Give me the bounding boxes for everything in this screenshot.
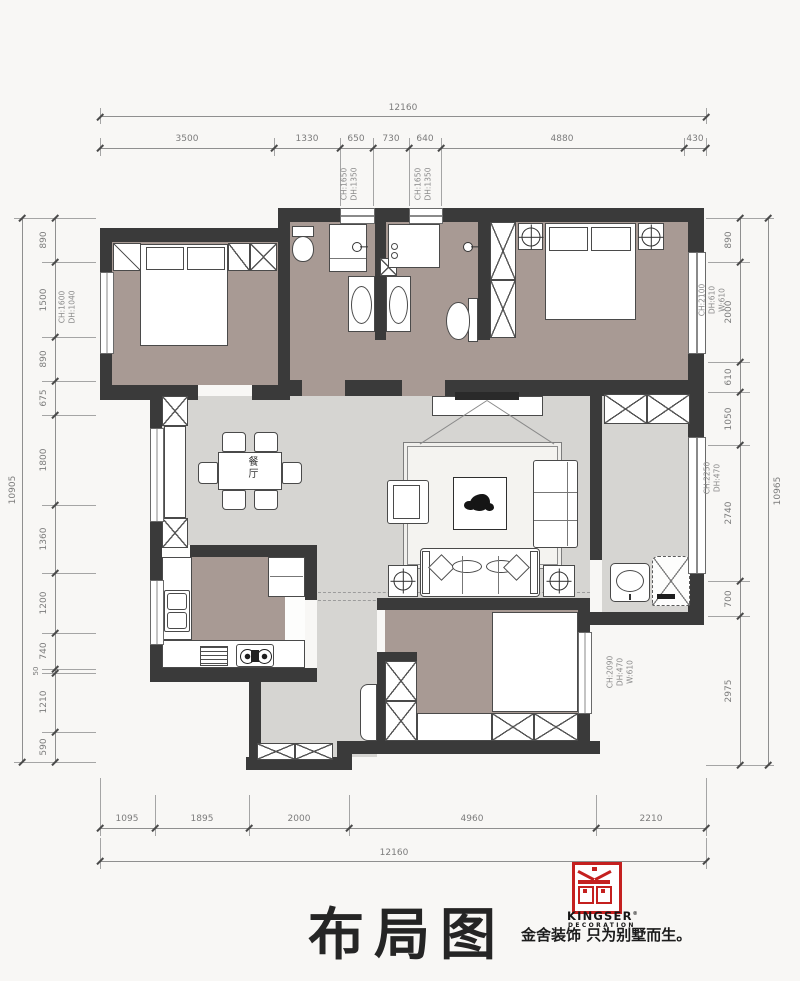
dim-extension-line	[708, 616, 750, 617]
dim-label: 890	[724, 231, 734, 248]
hallway-floor	[317, 598, 377, 682]
dim-extension-line	[42, 505, 96, 506]
dim-extension-line	[42, 669, 96, 670]
stove-center	[251, 650, 259, 662]
shoe-cabinet	[257, 743, 295, 760]
dim-label: 1360	[39, 528, 49, 551]
dining-chair	[222, 490, 246, 510]
dim-line-left-total	[22, 218, 23, 762]
dining-chair	[254, 432, 278, 452]
chaise-divider	[534, 492, 577, 493]
dim-line-left-chain	[55, 218, 56, 762]
window	[340, 208, 375, 224]
wall	[377, 598, 580, 610]
sofa-armrest	[422, 551, 430, 594]
plant	[470, 494, 490, 511]
wall	[578, 612, 704, 625]
armchair-cushion	[393, 485, 420, 519]
annotation-line: DH:1350	[423, 167, 433, 200]
tap-circle	[391, 252, 398, 259]
dim-label: 1095	[116, 814, 139, 824]
dim-extension-line	[249, 795, 250, 836]
window-annotation: CH:1650 DH:1350	[339, 167, 359, 200]
window-annotation: CH:2250 DH:470	[702, 462, 722, 495]
wall	[337, 741, 352, 770]
dining-chair	[282, 462, 302, 484]
door-leaf	[360, 684, 377, 741]
wardrobe	[113, 243, 141, 271]
floor-plan-canvas: 12160 3500 1330 650 730 640 4880 430 109…	[0, 0, 800, 981]
drawing-title: 布局图	[308, 890, 506, 971]
dim-label: 1050	[724, 408, 734, 431]
window	[150, 580, 164, 645]
dim-label: 675	[39, 389, 49, 406]
logo-seal-tick	[601, 889, 605, 893]
dim-extension-line	[42, 381, 96, 382]
chaise-backrest	[567, 462, 568, 546]
dim-label: 10965	[773, 477, 783, 506]
wall	[478, 208, 490, 340]
cabinet	[385, 701, 417, 741]
window-annotation: CH:1600 DH:1040	[57, 290, 77, 323]
dim-label: 610	[724, 368, 734, 385]
dining-chair	[254, 490, 278, 510]
dim-label: 700	[724, 590, 734, 607]
tv	[455, 392, 519, 400]
window-annotation: CH:1650 DH:1350	[413, 167, 433, 200]
dim-extension-line	[708, 445, 750, 446]
wall	[345, 380, 402, 396]
wardrobe	[492, 713, 534, 741]
dim-extension-line	[349, 795, 350, 836]
fridge	[268, 557, 305, 597]
logo-roof-dot	[592, 867, 597, 871]
dining-chair	[198, 462, 218, 484]
dining-room-label: 餐厅	[244, 456, 259, 480]
dim-extension-line	[100, 838, 101, 869]
pillow	[591, 227, 631, 251]
dim-label: 2740	[724, 502, 734, 525]
annotation-line: CH:1650	[339, 167, 349, 200]
wall	[100, 228, 290, 242]
dim-label: 650	[347, 134, 364, 144]
pillow	[549, 227, 588, 251]
window-annotation: CH:2090 DH:470 W:610	[605, 656, 634, 689]
annotation-line: CH:2100	[697, 284, 707, 317]
brand-tagline: 金舍装饰 只为别墅而生。	[521, 924, 691, 945]
sideboard	[164, 426, 186, 518]
dim-label: 12160	[389, 103, 418, 113]
dim-line-top-chain	[100, 148, 706, 149]
dim-extension-line	[42, 262, 96, 263]
tap-circle	[391, 243, 398, 250]
annotation-line: DH:470	[615, 656, 625, 689]
ceiling-lamp-icon	[522, 228, 541, 247]
storage-cabinet	[604, 394, 647, 424]
dim-label: 1895	[191, 814, 214, 824]
dim-label: 430	[686, 134, 703, 144]
basin-bowl	[616, 570, 644, 592]
annotation-line: DH:1350	[349, 167, 359, 200]
logo-seal-tick	[583, 889, 587, 893]
wardrobe	[228, 243, 250, 271]
dim-extension-line	[42, 732, 96, 733]
window-annotation: CH:2100 DH:610 W:610	[697, 284, 726, 317]
dim-extension-line	[706, 838, 707, 869]
sofa-armrest	[530, 551, 538, 594]
sofa-seat-line	[462, 556, 463, 594]
annotation-line: CH:2090	[605, 656, 615, 689]
dim-label: 1200	[39, 592, 49, 615]
kitchen-counter	[162, 640, 305, 668]
brand-text: KINGSER	[567, 909, 633, 923]
sideboard	[162, 518, 188, 548]
dim-label: 4880	[551, 134, 574, 144]
logo-bar	[578, 880, 610, 884]
wardrobe	[534, 713, 578, 741]
floor-lamp-icon	[550, 572, 569, 591]
wall	[278, 208, 290, 242]
sink-basin	[389, 286, 408, 324]
wall	[377, 652, 385, 745]
dim-label: 4960	[461, 814, 484, 824]
storage-cabinet	[647, 394, 690, 424]
window	[409, 208, 443, 224]
dining-chair	[222, 432, 246, 452]
fridge-door-line	[270, 576, 303, 577]
annotation-line: CH:1650	[413, 167, 423, 200]
window	[578, 632, 592, 714]
shoe-cabinet	[295, 743, 333, 760]
floor-lamp-icon	[394, 572, 413, 591]
basin-tap	[629, 594, 631, 600]
annotation-line: CH:1600	[57, 290, 67, 323]
dim-extension-line	[708, 581, 750, 582]
dim-label: 3500	[176, 134, 199, 144]
wall	[278, 242, 290, 385]
window	[150, 428, 164, 522]
window	[100, 272, 114, 354]
faucet-icon	[463, 242, 473, 252]
dim-extension-line	[42, 673, 96, 674]
dim-line-bottom-chain	[100, 828, 706, 829]
dim-label: 10905	[8, 476, 18, 505]
trademark-icon: ®	[633, 911, 639, 917]
burner-icon	[257, 649, 272, 664]
dim-extension-line	[42, 573, 96, 574]
wardrobe	[490, 280, 516, 338]
chaise-sofa	[533, 460, 578, 548]
annotation-line: W:610	[625, 656, 635, 689]
wall	[190, 545, 317, 557]
pillow	[187, 247, 225, 270]
sideboard	[162, 396, 188, 426]
dim-label: 12160	[380, 848, 409, 858]
window	[688, 437, 706, 574]
ceiling-lamp-icon	[642, 228, 661, 247]
dim-line-right-chain	[740, 218, 741, 765]
wall	[285, 380, 302, 396]
desk-shelf	[417, 713, 492, 741]
dim-label: 1330	[296, 134, 319, 144]
wardrobe	[490, 222, 516, 280]
sink-bowl	[167, 612, 187, 629]
dim-extension-line	[42, 415, 96, 416]
dim-label: 1210	[39, 691, 49, 714]
sofa-seat-line	[498, 556, 499, 594]
sofa-cushion	[452, 560, 482, 573]
dim-label: 890	[39, 350, 49, 367]
annotation-line: CH:2250	[702, 462, 712, 495]
washer-panel	[657, 594, 675, 599]
brand-name: KINGSER®	[567, 909, 639, 923]
annotation-line: DH:610	[707, 284, 717, 317]
pillow	[146, 247, 184, 270]
dim-extension-line	[42, 337, 96, 338]
dim-label: 740	[39, 642, 49, 659]
dim-label: 1500	[39, 289, 49, 312]
dim-line-top-total	[100, 116, 706, 117]
dim-extension-line	[596, 795, 597, 836]
dim-label: 890	[39, 231, 49, 248]
toilet-bowl	[446, 302, 470, 340]
dim-label: 50	[32, 667, 40, 676]
shower-divider	[330, 258, 366, 259]
dim-extension-line	[42, 633, 96, 634]
dim-label: 730	[382, 134, 399, 144]
dim-label: 1800	[39, 449, 49, 472]
cabinet	[385, 661, 417, 701]
wall	[349, 741, 600, 754]
toilet-bowl	[292, 236, 314, 262]
dim-extension-line	[708, 362, 750, 363]
wall	[150, 668, 317, 682]
sink-bowl	[167, 593, 187, 610]
wall	[590, 396, 602, 560]
dim-extension-line	[155, 795, 156, 836]
dish-rack	[200, 646, 228, 666]
dim-label: 2975	[724, 680, 734, 703]
wall	[305, 557, 317, 600]
bed	[492, 612, 578, 712]
annotation-line: DH:1040	[67, 290, 77, 323]
dim-label: 2000	[288, 814, 311, 824]
sink-basin	[351, 286, 372, 324]
wall	[377, 652, 417, 661]
dim-label: 590	[39, 738, 49, 755]
dim-line-right-total	[768, 218, 769, 765]
kingser-logo-icon	[572, 862, 622, 914]
chaise-divider	[534, 520, 577, 521]
dim-extension-line	[708, 262, 750, 263]
dim-label: 640	[416, 134, 433, 144]
dim-label: 2210	[640, 814, 663, 824]
dim-extension-line	[708, 392, 750, 393]
annotation-line: DH:470	[712, 462, 722, 495]
annotation-line: W:610	[717, 284, 727, 317]
wardrobe	[250, 243, 277, 271]
faucet-icon	[352, 242, 362, 252]
